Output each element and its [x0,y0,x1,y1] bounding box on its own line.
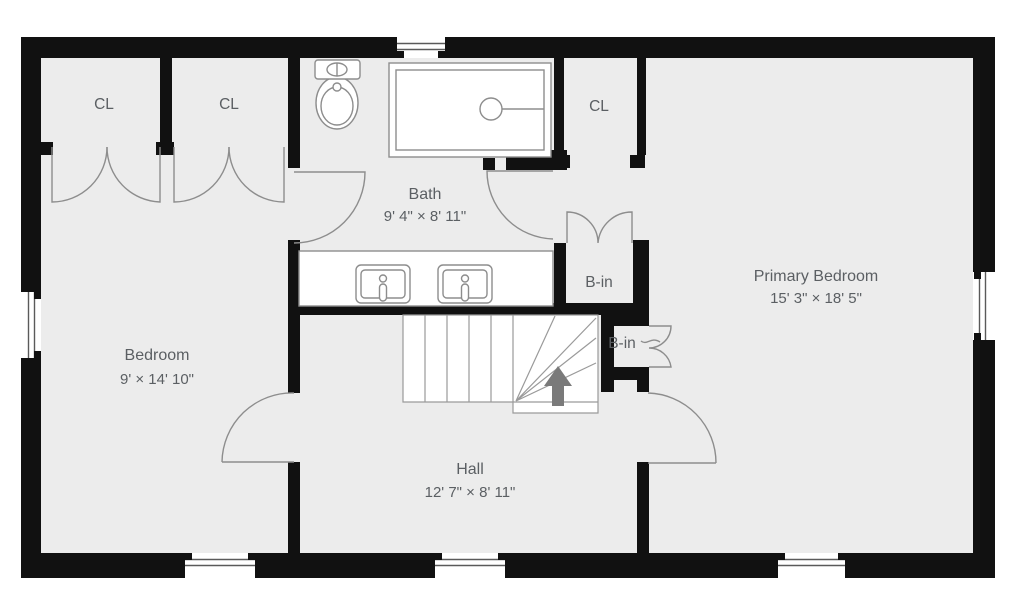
wall-bottom [21,553,995,578]
wall-builtin2-south [603,367,649,380]
room-label-hall: Hall [456,461,484,478]
room-dims-primary-bedroom: 15' 3" × 18' 5" [770,290,862,307]
closet-label: CL [589,98,609,115]
window-top [397,37,445,58]
builtin-label: B-in [585,274,613,291]
room-label-primary-bedroom: Primary Bedroom [754,268,878,285]
window-right [973,272,995,340]
bathtub-icon [389,63,551,157]
wall-closet3-west [554,58,564,155]
wall-closet3-east [637,58,646,155]
floorplan-canvas: CL CL CL Bath 9' 4" × 8' 11" B-in B-in P… [0,0,1024,611]
window-bottom-3 [778,553,845,578]
staircase [403,315,598,413]
builtin-label: B-in [608,335,636,352]
vanity-counter [299,251,553,306]
room-dims-bath: 9' 4" × 8' 11" [384,208,466,225]
wall-west-mid [288,240,300,393]
sink-icon [356,265,410,303]
wall-jamb-stub [156,142,174,155]
room-label-bedroom: Bedroom [125,347,190,364]
wall-west-bottom [288,462,300,553]
closet-label: CL [219,96,239,113]
wall-builtin2-north [614,315,649,326]
wall-jamb-stub [556,155,570,168]
wall-jamb-stub [41,142,53,155]
sink-icon [438,265,492,303]
floorplan-image: CL CL CL Bath 9' 4" × 8' 11" B-in B-in P… [0,0,1024,611]
wall-jamb-stub [483,158,495,170]
wall-top [21,37,995,58]
window-bottom-2 [435,553,505,578]
toilet-icon [315,60,360,129]
wall-west-top [288,58,300,168]
wall-closet-divider [160,58,172,155]
window-bottom-1 [185,553,255,578]
wall-jamb-stub [630,155,645,168]
room-dims-hall: 12' 7" × 8' 11" [425,484,516,501]
window-left [21,292,41,358]
closet-label: CL [94,96,114,113]
wall-primary-west [637,462,649,553]
room-label-bath: Bath [409,186,442,203]
room-dims-bedroom: 9' × 14' 10" [120,371,194,388]
wall-builtin1-south [554,303,649,315]
wall-jamb-stub [637,380,649,392]
